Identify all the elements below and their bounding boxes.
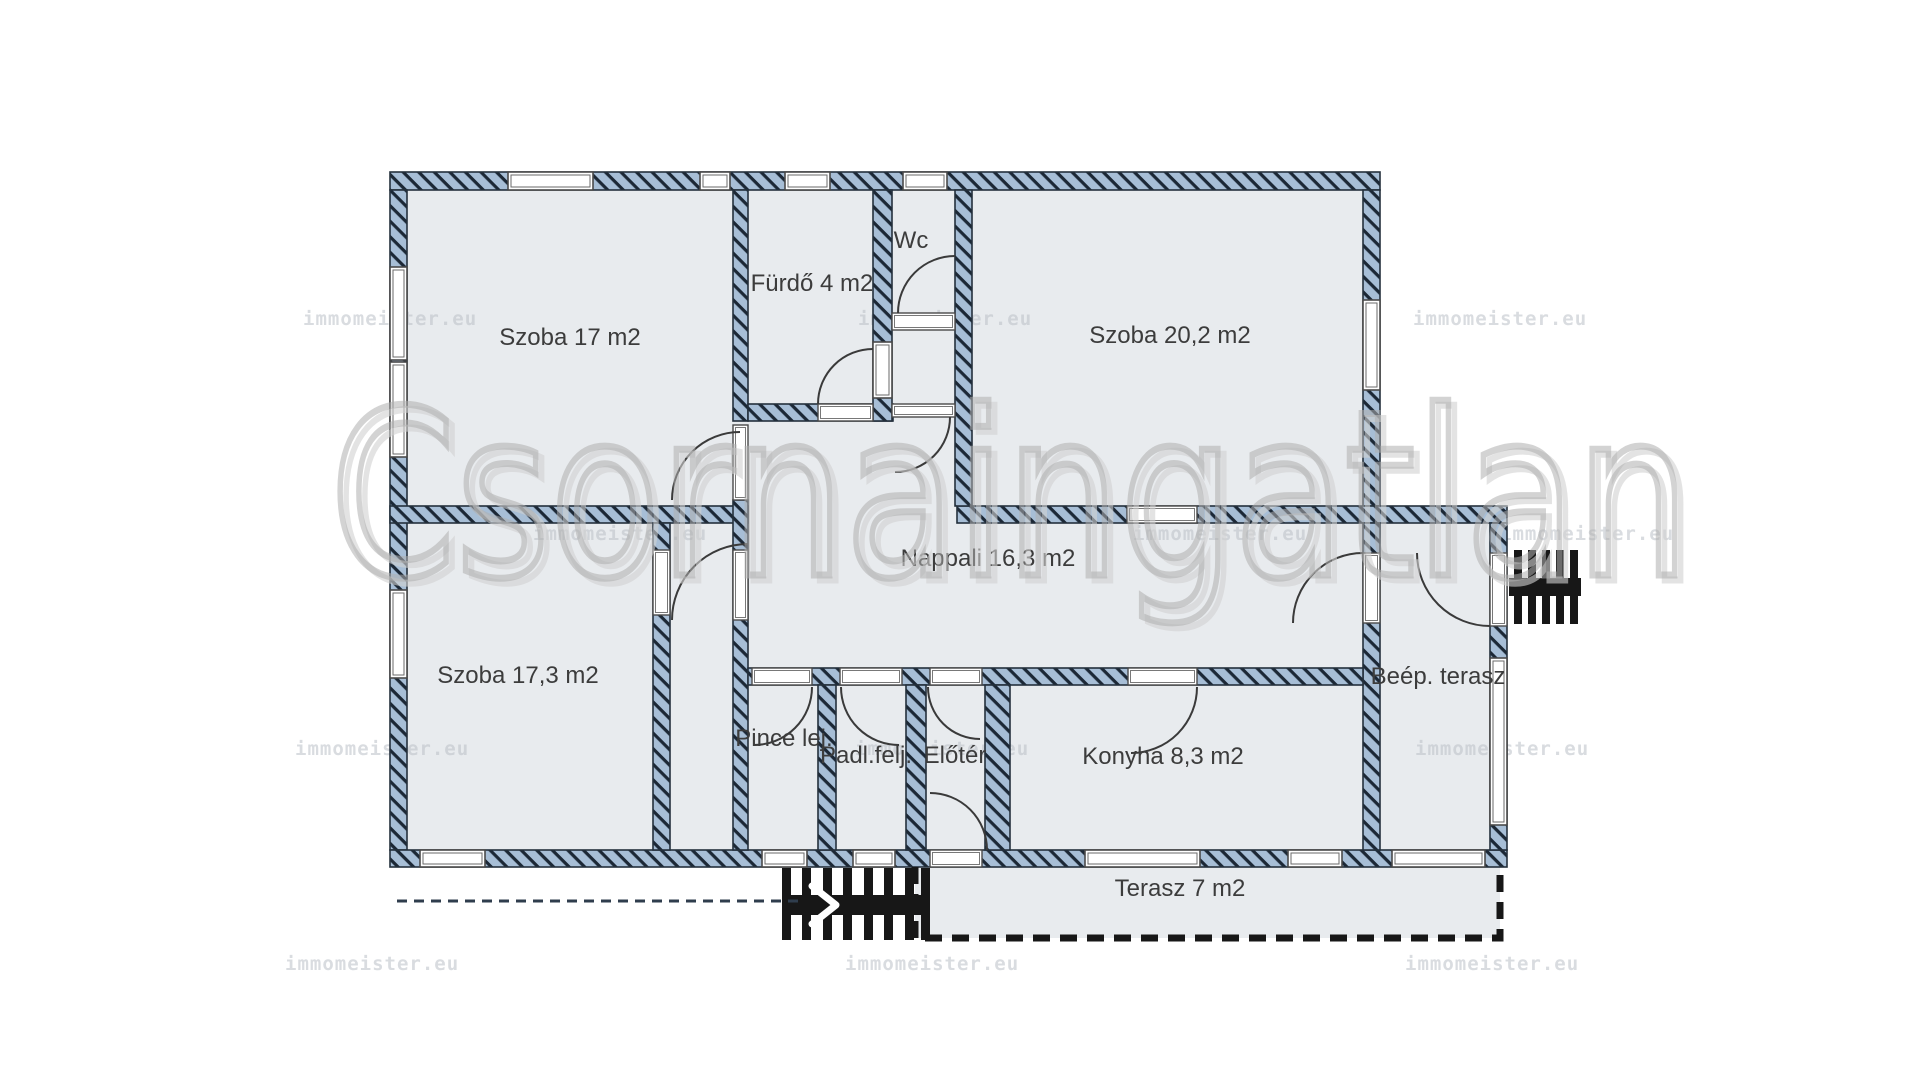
room-label-pince-lej: Pince lej. bbox=[735, 725, 832, 752]
room-label-eloter: Előtér bbox=[924, 742, 987, 769]
room-label-szoba-17: Szoba 17 m2 bbox=[499, 324, 640, 351]
watermark-url-2-0: immomeister.eu bbox=[295, 738, 469, 760]
window-frame-top-window-small bbox=[703, 175, 727, 187]
window-frame-bottom-window-1 bbox=[423, 853, 482, 864]
opening-frame-entrance-door-gap bbox=[933, 853, 980, 865]
floorplan-page: immomeister.euimmomeister.euimmomeister.… bbox=[0, 0, 1920, 1080]
opening-frame-wc-door-gap bbox=[895, 316, 953, 328]
window-frame-top-window-furdo bbox=[788, 175, 827, 187]
window-frame-annex-bottom-window bbox=[1395, 853, 1482, 864]
window-frame-konyha-window-1 bbox=[1088, 853, 1197, 864]
opening-frame-padl-opening bbox=[843, 671, 900, 683]
watermark-url-0-2: immomeister.eu bbox=[1413, 308, 1587, 330]
opening-frame-eloter-opening bbox=[933, 671, 980, 683]
window-frame-bottom-window-2 bbox=[765, 853, 804, 864]
room-label-terasz: Terasz 7 m2 bbox=[1115, 875, 1246, 902]
room-label-wc: Wc bbox=[894, 227, 929, 254]
room-label-furdo: Fürdő 4 m2 bbox=[751, 270, 874, 297]
watermark-brand: Csornaingatlan bbox=[330, 363, 1690, 630]
window-frame-left-window-1 bbox=[393, 270, 404, 357]
room-label-beep-terasz: Beép. terasz bbox=[1371, 663, 1506, 690]
room-label-szoba-17-3: Szoba 17,3 m2 bbox=[437, 662, 598, 689]
window-frame-top-window-wc bbox=[906, 175, 944, 187]
window-frame-top-window-szoba17 bbox=[511, 175, 590, 187]
opening-frame-pince-opening bbox=[755, 671, 810, 683]
watermark-url-3-1: immomeister.eu bbox=[845, 953, 1019, 975]
wall-eloter-konyha bbox=[985, 685, 1010, 850]
window-frame-bottom-window-3 bbox=[856, 853, 892, 864]
floorplan-drawing: immomeister.euimmomeister.euimmomeister.… bbox=[0, 0, 1920, 1080]
room-label-padl-felj: Padl.felj. bbox=[820, 742, 912, 769]
watermark-url-3-0: immomeister.eu bbox=[285, 953, 459, 975]
stairs-bottom-spine bbox=[782, 895, 930, 915]
room-label-szoba-20-2: Szoba 20,2 m2 bbox=[1089, 322, 1250, 349]
opening-frame-konyha-opening bbox=[1131, 671, 1195, 683]
window-frame-konyha-window-2 bbox=[1291, 853, 1339, 864]
watermark-url-3-2: immomeister.eu bbox=[1405, 953, 1579, 975]
room-label-konyha: Konyha 8,3 m2 bbox=[1082, 743, 1243, 770]
